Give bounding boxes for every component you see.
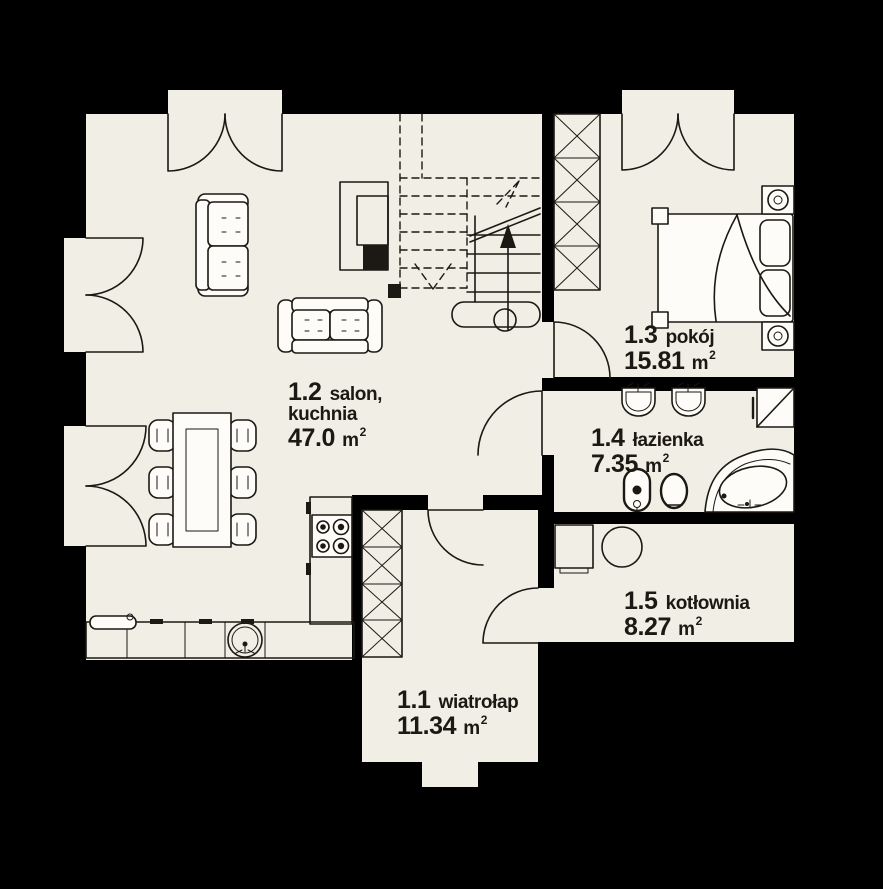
nightstand-icon <box>762 186 794 214</box>
door-recess-left-2 <box>64 426 88 546</box>
entrance-recess <box>422 762 478 787</box>
nightstand-icon <box>762 322 794 350</box>
stove-icon <box>312 515 352 557</box>
threshold-pokoj <box>542 322 554 378</box>
threshold-kotlownia <box>538 588 554 642</box>
dining-table-icon <box>149 413 256 547</box>
floor-plan: 1.1wiatrołap 11.34m2 1.2salon, kuchnia 4… <box>0 0 883 889</box>
room-area: 11.34 <box>397 713 456 739</box>
washbasin-icon <box>672 383 705 416</box>
room-area: 8.27 <box>624 614 671 640</box>
shower-icon <box>753 388 794 427</box>
sofa-horizontal-icon <box>278 298 382 353</box>
room-label-kotlownia: 1.5kotłownia 8.27m2 <box>624 588 750 640</box>
room-name-line2: kuchnia <box>288 405 357 425</box>
room-label-pokoj: 1.3pokój 15.81m2 <box>624 322 715 374</box>
room-number: 1.2 <box>288 379 322 405</box>
bed-icon <box>652 208 793 328</box>
room-area: 7.35 <box>591 451 638 477</box>
threshold-lazienka <box>542 391 554 455</box>
room-label-wiatrolap: 1.1wiatrołap 11.34m2 <box>397 687 518 739</box>
washbasin-icon <box>622 383 655 416</box>
room-name: pokój <box>666 328 715 348</box>
door-recess-left-1 <box>64 238 88 352</box>
room-area: 15.81 <box>624 348 685 374</box>
toilet-icon <box>661 474 687 508</box>
column-post <box>388 284 401 298</box>
room-name: łazienka <box>633 431 704 451</box>
room-label-salon-kuchnia: 1.2salon, kuchnia 47.0m2 <box>288 379 382 451</box>
door-recess-top-pokoj <box>622 90 734 116</box>
pillow-icon <box>760 270 790 316</box>
pillow-icon <box>760 220 790 266</box>
room-label-lazienka: 1.4łazienka 7.35m2 <box>591 425 703 477</box>
room-area: 47.0 <box>288 425 335 451</box>
counter-lid <box>90 616 136 629</box>
room-name: wiatrołap <box>439 693 519 713</box>
room-number: 1.1 <box>397 687 431 713</box>
door-recess-top-salon <box>168 90 282 116</box>
threshold-wiatrolap <box>428 495 483 510</box>
room-name: salon, <box>330 385 383 405</box>
room-number: 1.5 <box>624 588 658 614</box>
sofa-vertical-icon <box>196 194 248 296</box>
floor-plan-drawing <box>0 0 883 889</box>
room-number: 1.4 <box>591 425 625 451</box>
room-number: 1.3 <box>624 322 658 348</box>
room-name: kotłownia <box>666 594 750 614</box>
